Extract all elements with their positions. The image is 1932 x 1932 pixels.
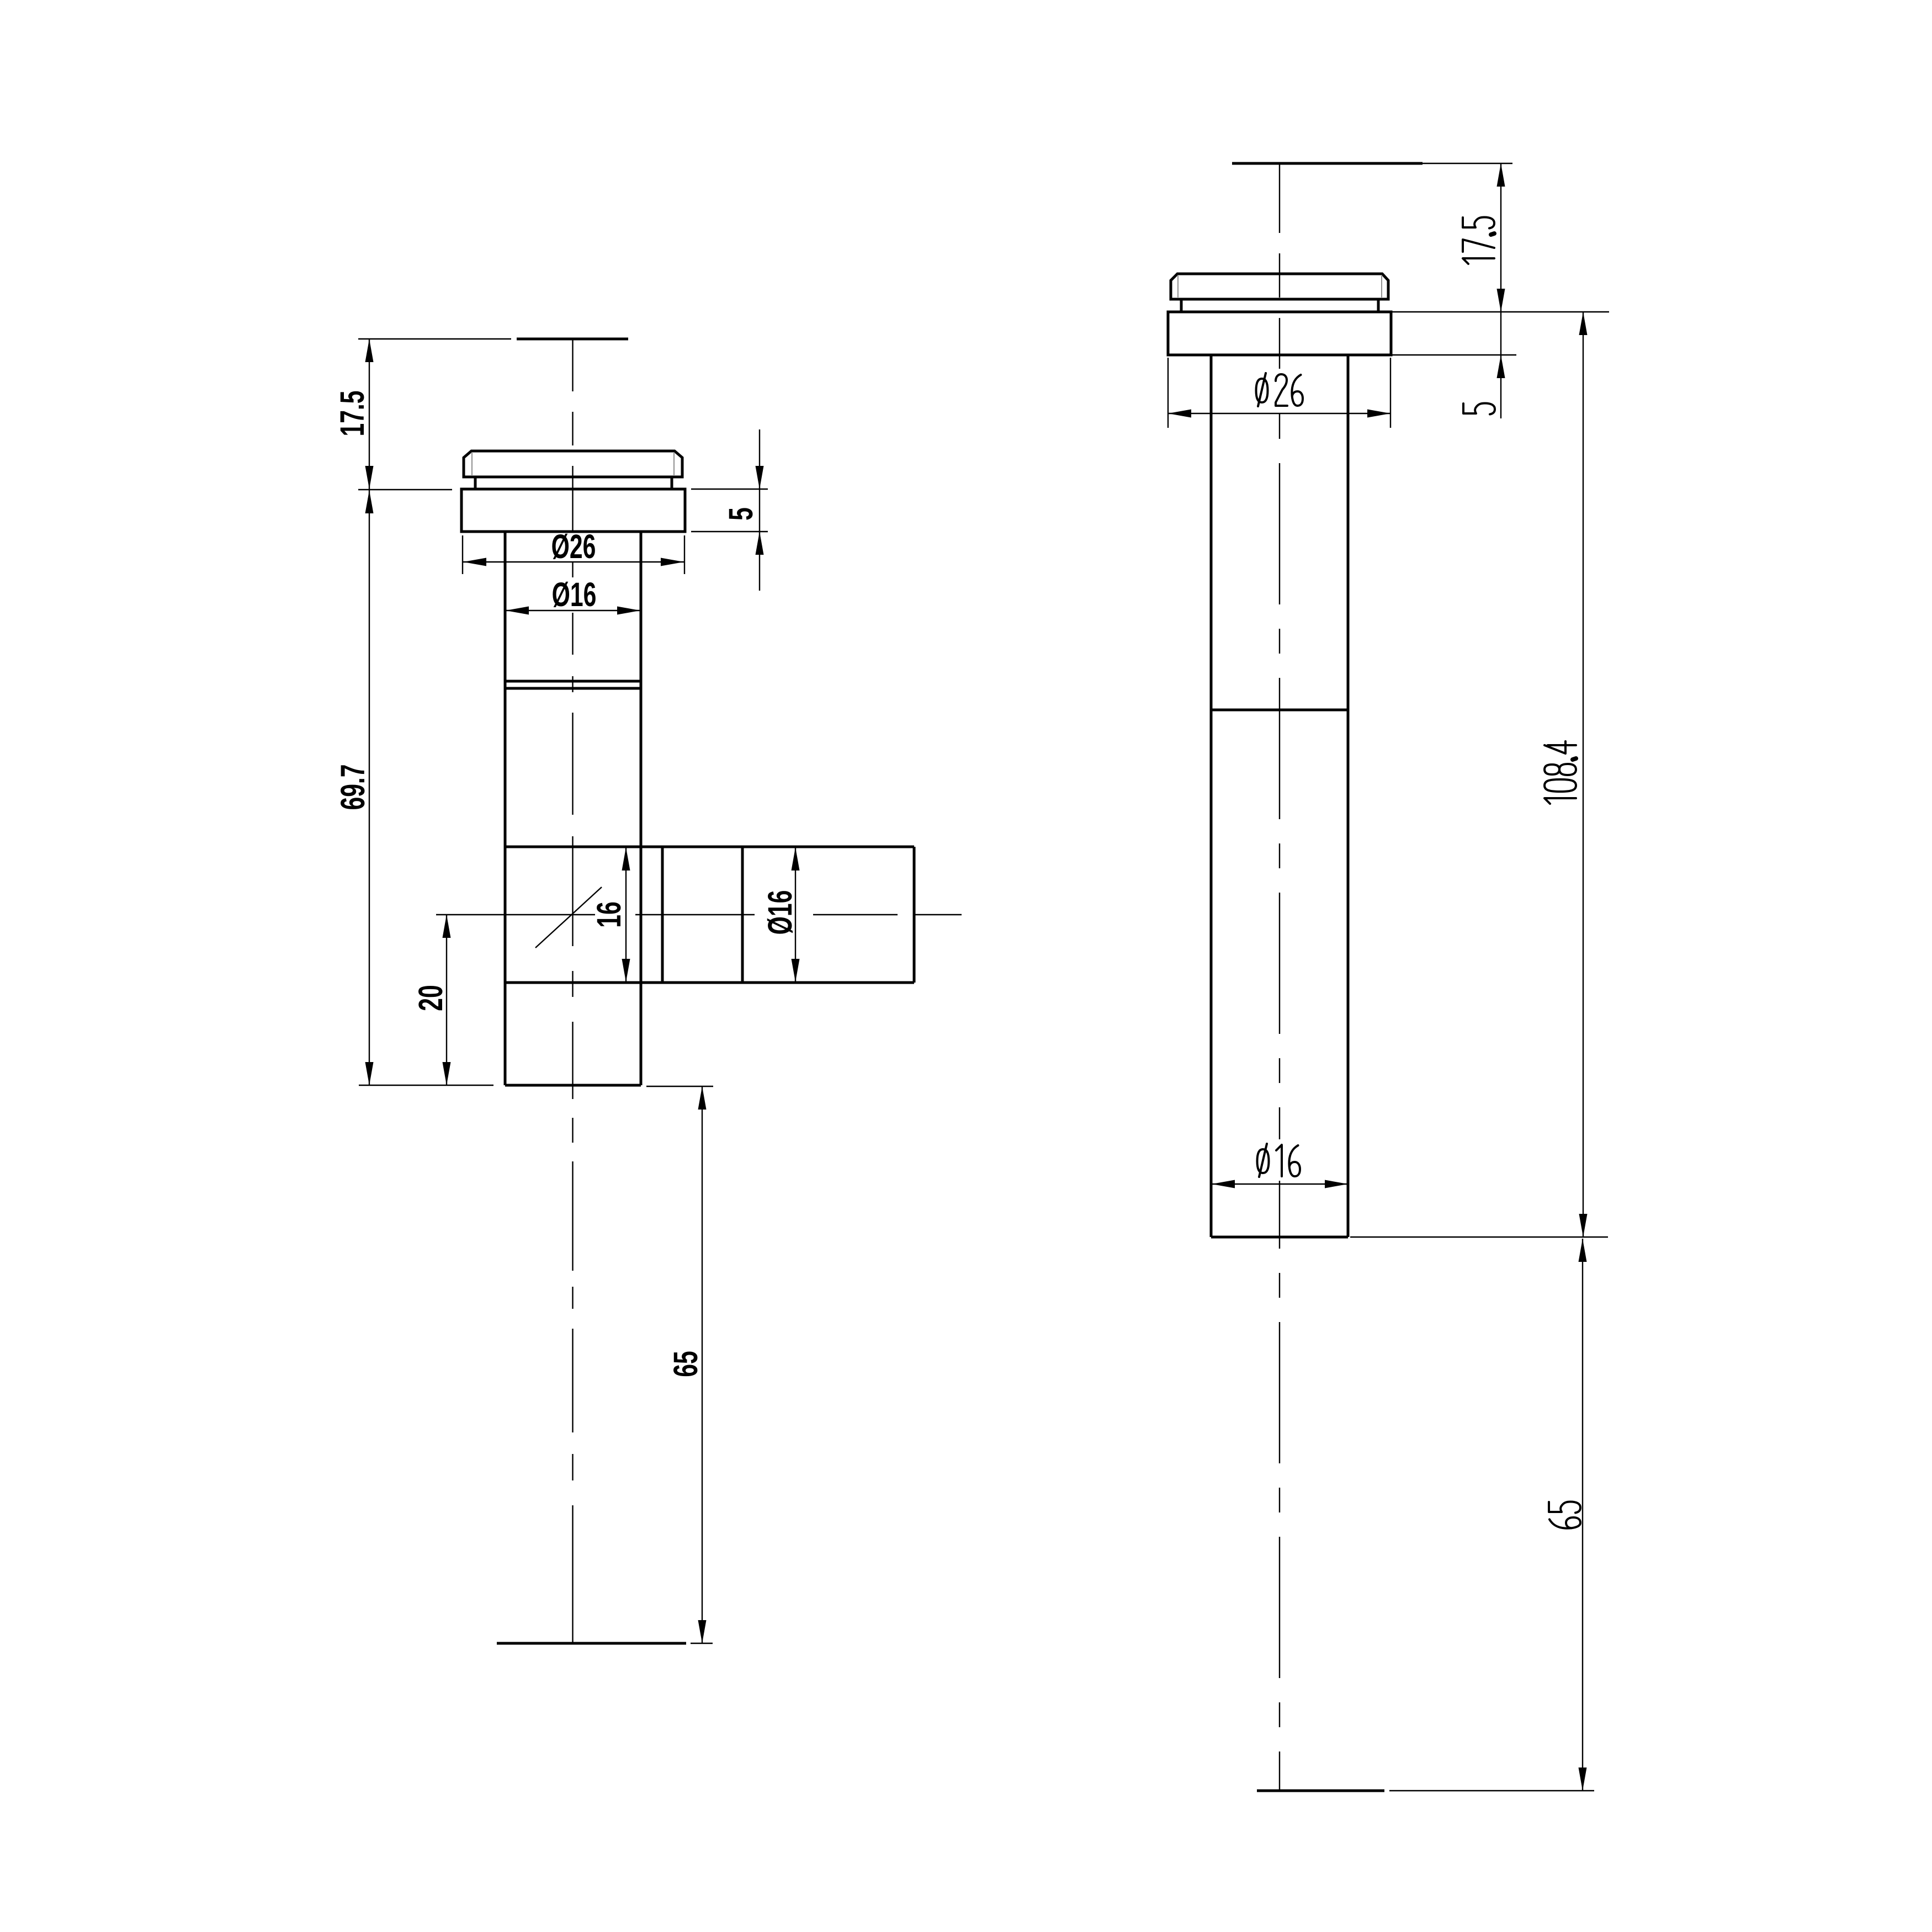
svg-text:Ø16: Ø16 bbox=[552, 576, 597, 614]
svg-text:Ø26: Ø26 bbox=[551, 528, 596, 566]
svg-text:16: 16 bbox=[591, 901, 628, 927]
svg-text:65: 65 bbox=[667, 1351, 705, 1377]
svg-text:5: 5 bbox=[723, 507, 760, 521]
svg-text:17.5: 17.5 bbox=[334, 390, 371, 436]
svg-text:Ø16: Ø16 bbox=[762, 890, 799, 935]
svg-text:20: 20 bbox=[412, 985, 450, 1011]
svg-text:69.7: 69.7 bbox=[335, 764, 372, 810]
